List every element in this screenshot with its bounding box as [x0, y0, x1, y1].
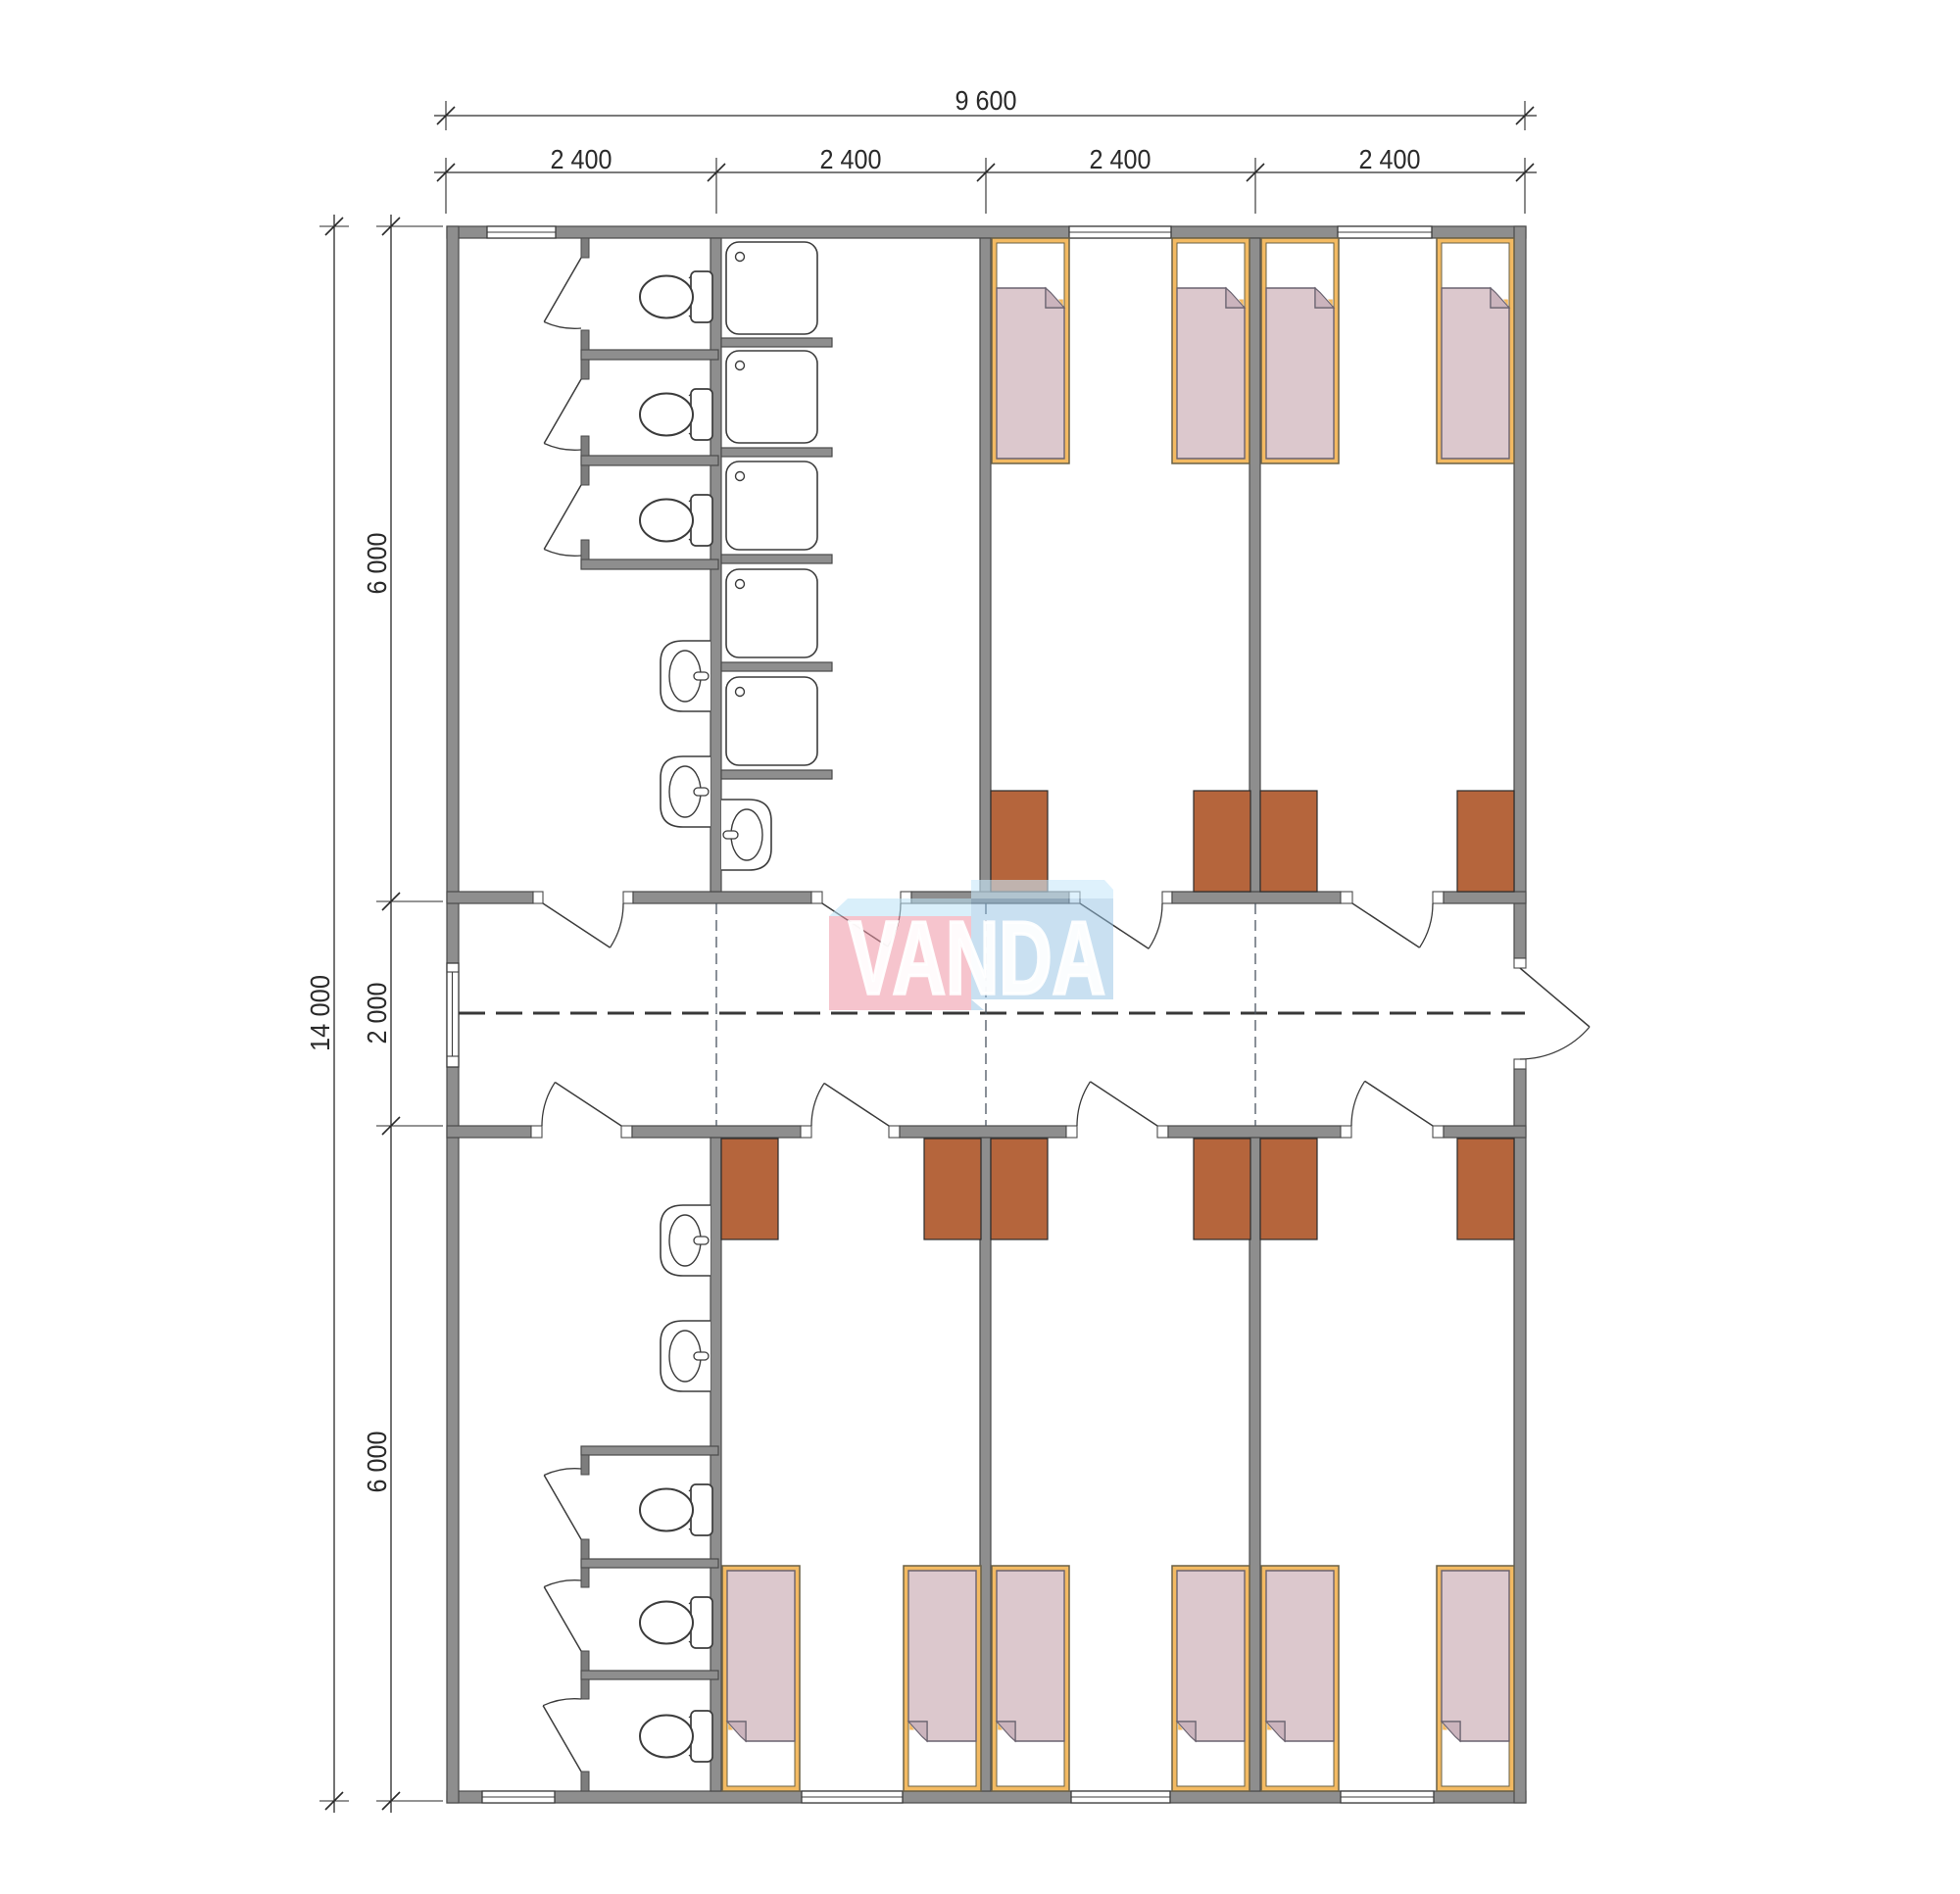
svg-text:14 000: 14 000 [305, 975, 335, 1051]
svg-text:2 400: 2 400 [820, 144, 882, 174]
svg-text:6 000: 6 000 [362, 533, 392, 595]
svg-text:2 400: 2 400 [1090, 144, 1151, 174]
svg-text:6 000: 6 000 [362, 1432, 392, 1493]
svg-text:2 400: 2 400 [1359, 144, 1421, 174]
svg-text:VANDA: VANDA [849, 900, 1105, 1016]
svg-text:9 600: 9 600 [955, 85, 1017, 116]
svg-text:2 400: 2 400 [551, 144, 612, 174]
svg-text:2 000: 2 000 [362, 983, 392, 1044]
